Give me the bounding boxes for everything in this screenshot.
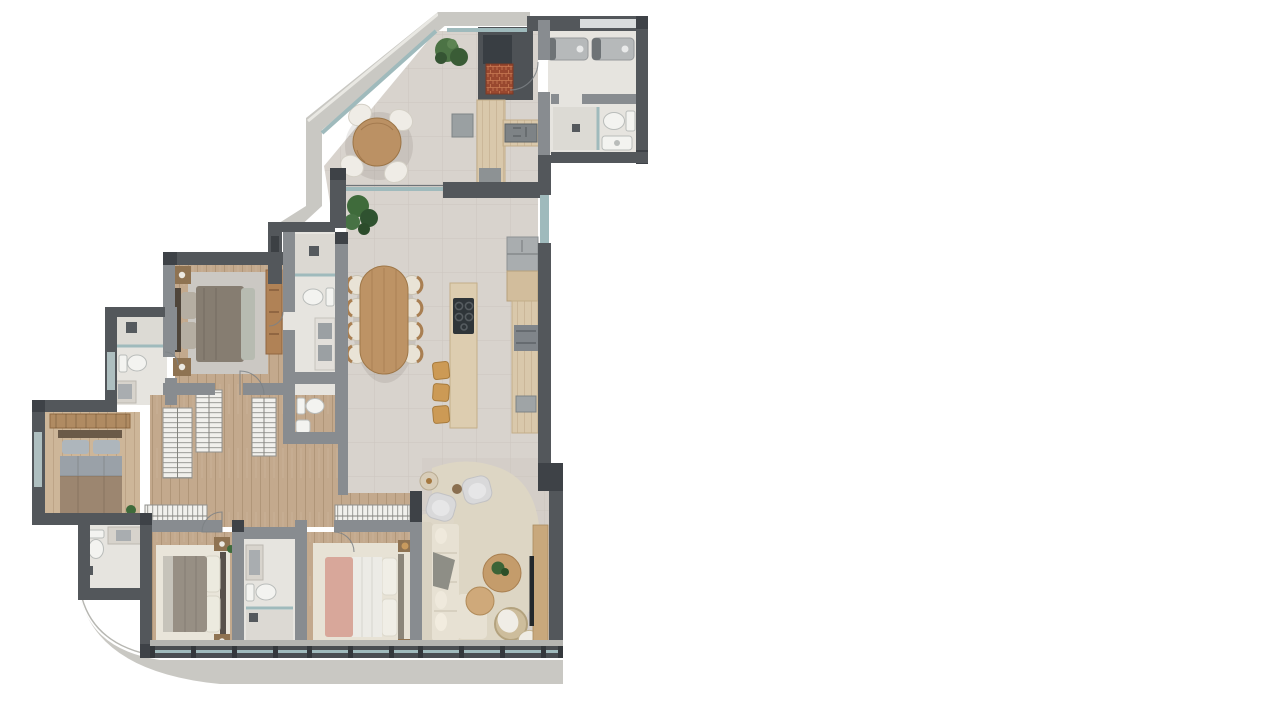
bedroom-2 (156, 537, 235, 648)
side-table (452, 484, 462, 494)
kitchen-sink (516, 396, 536, 412)
terrace-sink (505, 124, 537, 142)
tv (530, 556, 535, 626)
pink-throw (325, 557, 353, 637)
closet-rod (50, 414, 130, 428)
kitchen-counter (507, 271, 538, 301)
toilet (303, 288, 334, 306)
coffee-table-small (466, 587, 494, 615)
window (580, 19, 638, 28)
kitchen-tall-counter (512, 301, 538, 433)
window (34, 432, 42, 487)
window (540, 195, 549, 243)
bedroom-3 (313, 540, 413, 651)
toilet (246, 584, 276, 601)
floor-plan-svg (0, 0, 1280, 723)
master-bedroom (173, 266, 282, 376)
tv-console (533, 525, 548, 647)
toilet (297, 398, 324, 414)
grill-brick (486, 64, 513, 94)
toilet (119, 355, 147, 372)
terrace-round-table (353, 118, 401, 166)
window-band (150, 640, 563, 658)
toilet (604, 111, 636, 131)
sink (296, 420, 310, 433)
toilet (88, 530, 104, 559)
stools (432, 361, 450, 423)
grill-counter (478, 27, 533, 100)
dryer (592, 38, 634, 60)
wall-oven (514, 325, 538, 351)
floor-plan-screenshot (0, 0, 1280, 723)
washer (547, 38, 588, 60)
window (107, 352, 115, 390)
terrace-cabinet (452, 114, 473, 137)
